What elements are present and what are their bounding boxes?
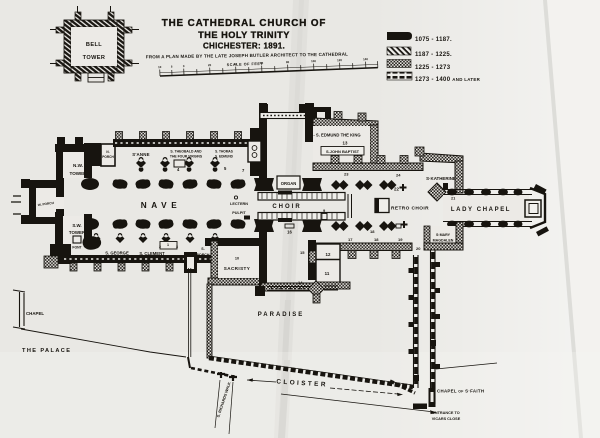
svg-text:FONT: FONT xyxy=(72,246,82,250)
svg-text:- S. EDMUND THE KING: - S. EDMUND THE KING xyxy=(313,133,360,138)
svg-text:N.: N. xyxy=(106,150,109,154)
svg-text:1: 1 xyxy=(167,243,169,247)
svg-text:10: 10 xyxy=(235,257,239,261)
svg-text:10: 10 xyxy=(158,65,162,69)
svg-text:THE FOUR VIRGINS: THE FOUR VIRGINS xyxy=(170,155,203,159)
svg-text:N.W.: N.W. xyxy=(73,163,83,168)
svg-text:LECTERN: LECTERN xyxy=(230,202,248,206)
svg-text:23: 23 xyxy=(344,172,349,177)
svg-text:THE HOLY TRINITY: THE HOLY TRINITY xyxy=(198,30,290,40)
svg-text:CHAPEL: CHAPEL xyxy=(26,311,44,316)
svg-text:S.: S. xyxy=(201,247,204,251)
svg-text:S·MARY: S·MARY xyxy=(436,233,451,237)
svg-text:THE PALACE: THE PALACE xyxy=(22,348,71,354)
svg-text:40: 40 xyxy=(234,62,238,66)
svg-text:S·KATHERINE: S·KATHERINE xyxy=(426,176,456,181)
svg-text:PORCH: PORCH xyxy=(102,155,114,159)
svg-text:S. EDMUND: S. EDMUND xyxy=(215,155,234,159)
svg-text:140: 140 xyxy=(363,57,368,61)
svg-text:S.JOHN BAPTIST: S.JOHN BAPTIST xyxy=(326,149,360,154)
svg-text:TOWER: TOWER xyxy=(69,171,87,176)
svg-text:CHOIR: CHOIR xyxy=(272,204,301,210)
svg-text:S. THOMAS: S. THOMAS xyxy=(215,150,233,154)
svg-text:NAVE: NAVE xyxy=(141,201,182,210)
svg-text:PARADISE: PARADISE xyxy=(258,312,305,318)
svg-text:15: 15 xyxy=(300,250,305,255)
svg-text:LADY CHAPEL: LADY CHAPEL xyxy=(451,207,511,213)
svg-text:RETRO CHOIR: RETRO CHOIR xyxy=(391,206,429,212)
svg-text:TOWER: TOWER xyxy=(69,230,86,235)
svg-text:CHICHESTER: 1891.: CHICHESTER: 1891. xyxy=(203,42,285,51)
svg-text:BELL: BELL xyxy=(86,42,102,48)
svg-text:3: 3 xyxy=(176,245,178,249)
svg-text:S. THEOBALD AND: S. THEOBALD AND xyxy=(170,150,202,154)
svg-text:S. CLEMENT: S. CLEMENT xyxy=(139,251,165,256)
svg-text:24: 24 xyxy=(396,173,401,178)
svg-text:CHAPEL OF S·FAITH: CHAPEL OF S·FAITH xyxy=(437,389,484,394)
svg-text:S'ANNE: S'ANNE xyxy=(132,152,150,157)
svg-text:21: 21 xyxy=(451,197,455,201)
svg-text:THE CATHEDRAL CHURCH OF: THE CATHEDRAL CHURCH OF xyxy=(162,18,327,29)
svg-text:60: 60 xyxy=(260,61,264,65)
svg-text:18: 18 xyxy=(374,237,379,242)
svg-text:TOWER: TOWER xyxy=(83,55,106,61)
svg-text:120: 120 xyxy=(337,58,342,62)
svg-text:13: 13 xyxy=(343,141,348,146)
svg-text:PULPIT: PULPIT xyxy=(232,211,246,215)
svg-text:20: 20 xyxy=(208,63,212,67)
svg-text:14: 14 xyxy=(298,280,303,285)
svg-text:22: 22 xyxy=(394,187,399,192)
svg-text:20: 20 xyxy=(416,246,421,251)
svg-text:VICARS CLOSE: VICARS CLOSE xyxy=(432,417,461,421)
svg-text:1187 - 1225.: 1187 - 1225. xyxy=(415,52,452,58)
svg-text:MAGDALEN: MAGDALEN xyxy=(433,239,454,243)
svg-text:19: 19 xyxy=(398,237,403,242)
svg-text:1075 - 1187.: 1075 - 1187. xyxy=(415,37,452,43)
svg-text:S.W.: S.W. xyxy=(72,223,81,228)
svg-text:SACRISTY: SACRISTY xyxy=(224,266,250,271)
svg-text:S. GEORGE: S. GEORGE xyxy=(105,251,129,256)
svg-text:18: 18 xyxy=(370,229,375,234)
svg-text:1225 - 1273: 1225 - 1273 xyxy=(415,65,451,71)
svg-text:ORGAN: ORGAN xyxy=(281,181,297,186)
svg-text:PORCH: PORCH xyxy=(197,253,210,257)
svg-text:2: 2 xyxy=(159,245,161,249)
svg-text:12: 12 xyxy=(326,252,331,257)
svg-text:80: 80 xyxy=(286,60,290,64)
svg-text:100: 100 xyxy=(311,59,316,63)
svg-text:ENTRANCE TO: ENTRANCE TO xyxy=(432,411,459,415)
svg-text:16: 16 xyxy=(287,230,292,235)
svg-text:17: 17 xyxy=(348,237,353,242)
svg-text:11: 11 xyxy=(325,271,330,276)
